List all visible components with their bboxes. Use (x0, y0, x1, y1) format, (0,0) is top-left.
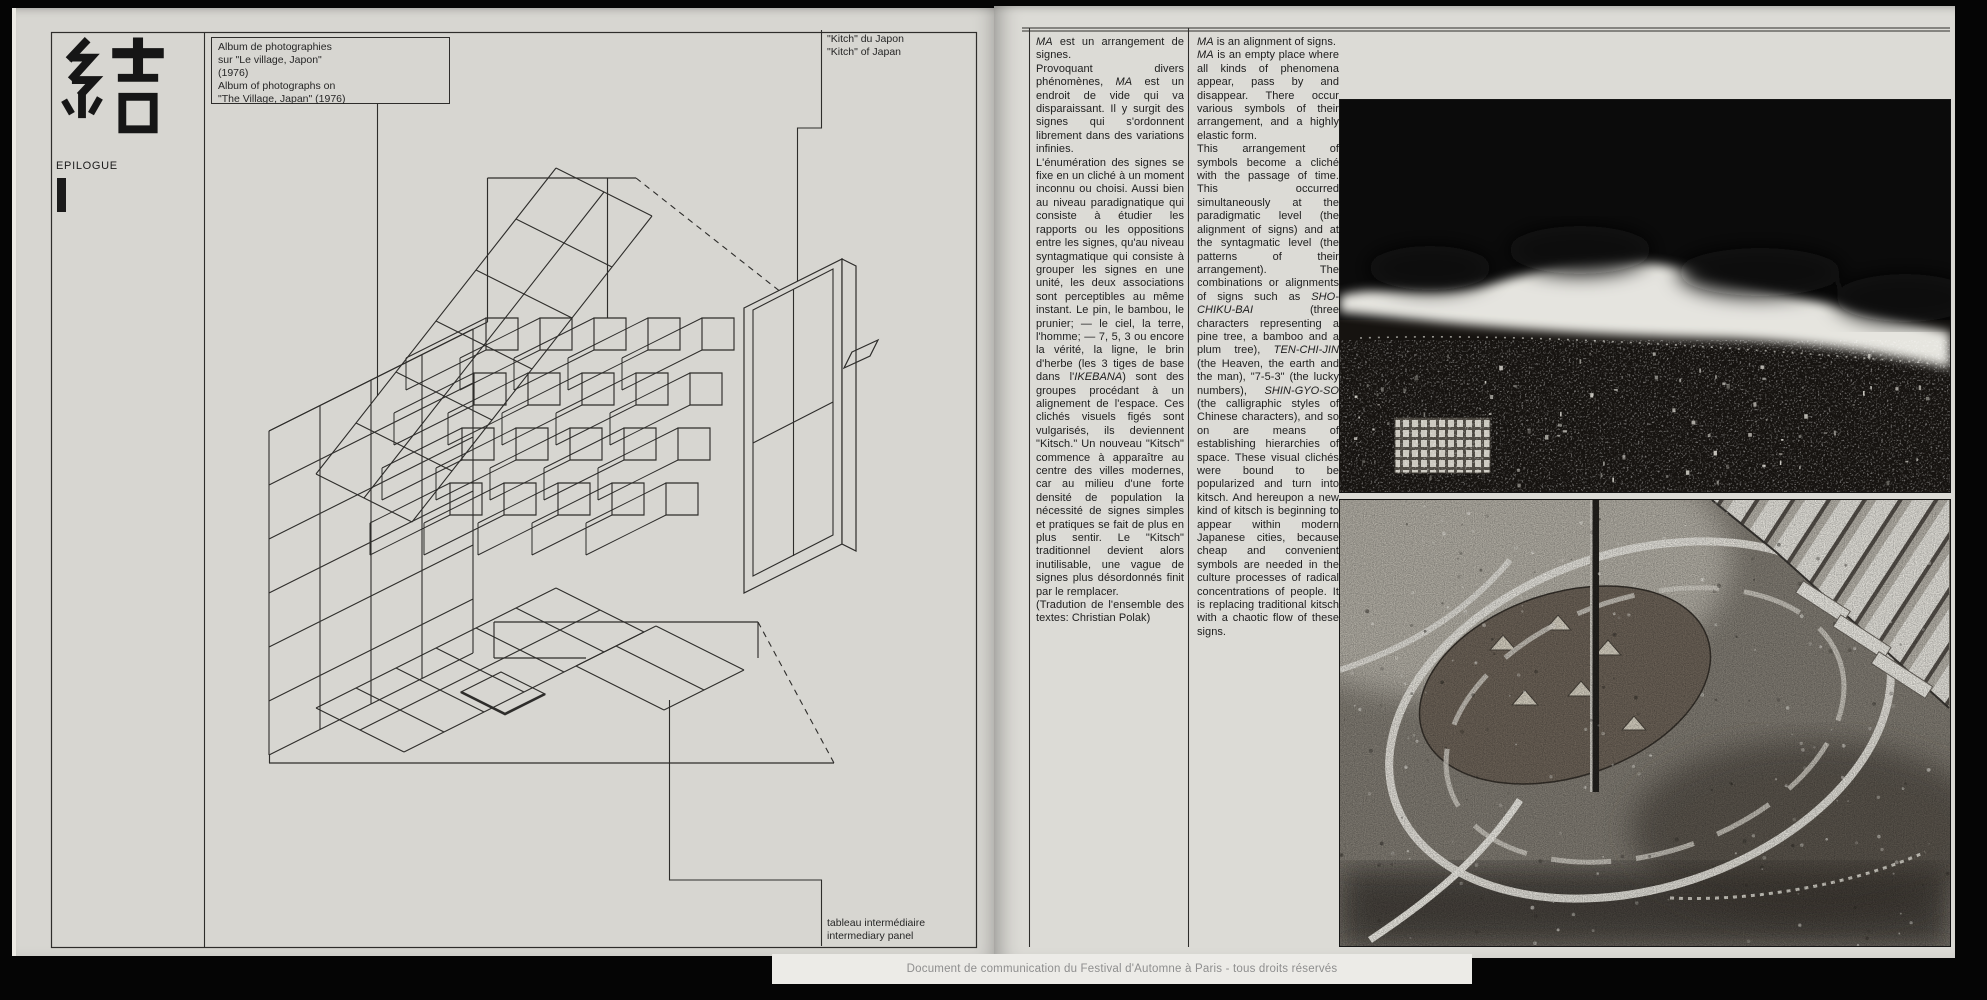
photo-crowd-plaza (1340, 500, 1950, 946)
epilogue-bar-mark (57, 178, 66, 212)
cube-array-extrusions (370, 318, 702, 555)
right-page: MA est un arrangement de signes.Provoqua… (994, 6, 1955, 958)
cube-array-faces (450, 318, 734, 515)
paragraph: (Tradution de l'ensemble des textes: Chr… (1036, 599, 1184, 626)
english-text-column: MA is an alignment of signs.MA is an emp… (1197, 36, 1339, 639)
photo-night-cityscape (1340, 100, 1950, 492)
scanned-catalogue-spread: EPILOGUE Album de photographies sur "Le … (0, 0, 1987, 1000)
city-grain (1340, 340, 1950, 492)
paragraph: MA is an empty place where all kinds of … (1197, 49, 1339, 143)
caption-panel: tableau intermédiaire intermediary panel (827, 917, 987, 943)
caption-album: Album de photographies sur "Le village, … (218, 41, 446, 106)
floor-tile-grid (316, 588, 644, 752)
caption-kitch: "Kitch" du Japon "Kitch" of Japan (827, 33, 987, 59)
small-floor-tile (461, 672, 545, 714)
ceiling-grid-panel (316, 168, 652, 522)
photo-grain (1340, 500, 1950, 946)
watermark-text: Document de communication du Festival d'… (907, 963, 1338, 975)
paragraph: MA is an alignment of signs. (1197, 36, 1339, 49)
kanji-musubi-glyph (54, 28, 166, 150)
intermediary-panel-tile (576, 626, 744, 710)
french-text-column: MA est un arrangement de signes.Provoqua… (1036, 36, 1184, 626)
epilogue-label: EPILOGUE (56, 160, 118, 172)
paragraph: This arrangement of symbols become a cli… (1197, 143, 1339, 639)
isometric-room-drawing (16, 8, 998, 956)
paragraph: Provoquant divers phénomènes, MA est un … (1036, 63, 1184, 157)
right-window-panel (744, 259, 856, 593)
paragraph: MA est un arrangement de signes. (1036, 36, 1184, 63)
paragraph: L'énumération des signes se fixe en un c… (1036, 157, 1184, 599)
left-page: EPILOGUE Album de photographies sur "Le … (12, 8, 998, 956)
watermark-band: Document de communication du Festival d'… (772, 954, 1472, 984)
